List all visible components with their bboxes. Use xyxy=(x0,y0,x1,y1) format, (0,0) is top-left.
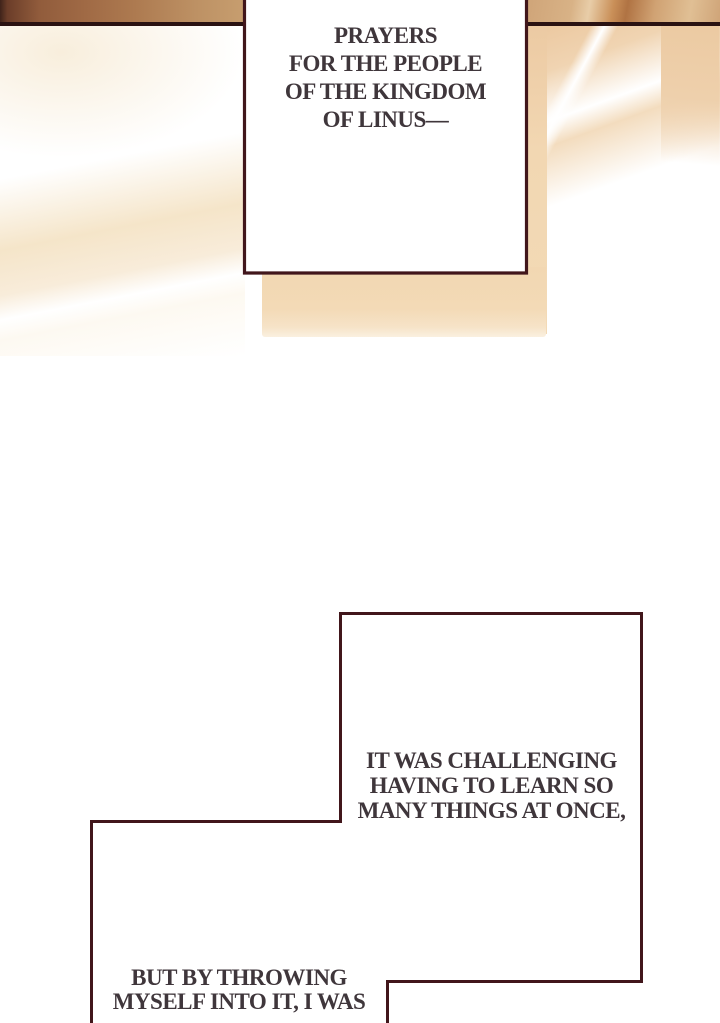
speech-text-challenging: IT WAS CHALLENGING HAVING TO LEARN SO MA… xyxy=(341,748,642,823)
comic-page: PRAYERS FOR THE PEOPLE OF THE KINGDOM OF… xyxy=(0,0,720,1023)
speech-text-prayers: PRAYERS FOR THE PEOPLE OF THE KINGDOM OF… xyxy=(244,22,527,134)
speech-box-layer xyxy=(0,0,720,1023)
speech-text-throwing: BUT BY THROWING MYSELF INTO IT, I WAS xyxy=(91,966,387,1014)
